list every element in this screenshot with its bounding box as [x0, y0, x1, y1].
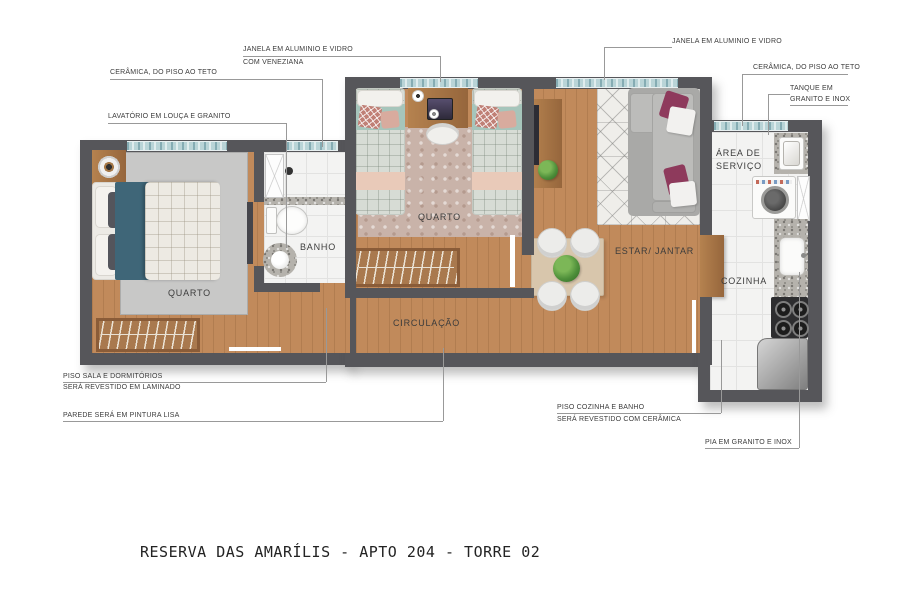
annotation-sink: PIA EM GRANITO E INOX	[705, 439, 792, 447]
annotation-paint: PAREDE SERÁ EM PINTURA LISA	[63, 412, 180, 420]
single-bed-right	[472, 88, 522, 215]
table-lamp	[97, 155, 121, 179]
leader-line	[108, 123, 286, 124]
leader-line	[63, 382, 326, 383]
dining-chair	[570, 281, 600, 311]
duvet	[145, 182, 220, 280]
dining-chair	[537, 281, 567, 311]
annotation-window-right: JANELA EM ALUMINIO E VIDRO	[672, 38, 782, 46]
room-label-living: ESTAR/ JANTAR	[615, 246, 694, 256]
sofa-throw	[666, 106, 696, 136]
dining-chair	[537, 228, 567, 258]
faucet	[801, 253, 806, 258]
living-window	[556, 78, 678, 88]
service-door-panel	[797, 176, 810, 221]
leader-line	[742, 74, 743, 126]
service-window	[714, 121, 788, 131]
toilet-bowl	[276, 206, 308, 235]
leader-line	[322, 79, 323, 147]
annotation-laminate-line1: PISO SALA E DORMITÓRIOS	[63, 373, 163, 381]
washer-door	[761, 186, 789, 214]
annotation-ceramic-floor-line1: PISO COZINHA E BANHO	[557, 404, 644, 412]
fridge	[757, 338, 808, 390]
sink-basin	[271, 251, 289, 269]
shower-ledge	[264, 197, 345, 205]
leader-line	[557, 413, 721, 414]
annotation-ceramic-floor-line2: SERÁ REVESTIDO COM CERÂMICA	[557, 416, 681, 424]
leader-line	[243, 56, 440, 57]
bedroom2-window	[400, 78, 478, 88]
washing-machine	[752, 176, 796, 219]
bathroom-wall	[254, 140, 264, 202]
leader-line	[790, 105, 848, 106]
bedroom2-wall	[522, 77, 534, 255]
floorplan-page: QUARTO BANHO QUARTO CIRCULAÇÃO ESTAR/ JA…	[0, 0, 900, 600]
stove-burner	[775, 301, 792, 318]
stove	[771, 297, 808, 338]
plain-cushion	[380, 110, 400, 129]
room-label-bedroom1: QUARTO	[168, 288, 211, 298]
room-label-bedroom2: QUARTO	[418, 212, 461, 222]
tank-basin	[783, 141, 800, 166]
leader-line	[768, 94, 790, 95]
laundry-tank	[779, 137, 804, 170]
leader-line	[326, 308, 327, 382]
sofa	[628, 88, 700, 216]
single-bed-left	[355, 88, 405, 215]
room-label-kitchen: COZINHA	[721, 276, 767, 286]
annotation-window-left-line2: COM VENEZIANA	[243, 59, 304, 67]
wardrobe	[96, 318, 200, 352]
annotation-laminate-line2: SERÁ REVESTIDO EM LAMINADO	[63, 384, 181, 392]
bedroom2-wall	[345, 288, 534, 298]
door-marker	[692, 300, 696, 353]
sofa-throw	[669, 181, 697, 208]
wardrobe-rail	[102, 334, 194, 335]
pass-through-counter	[700, 235, 724, 297]
centerpiece-plant	[553, 255, 580, 282]
door-marker	[229, 347, 281, 351]
wardrobe	[353, 248, 460, 287]
leader-line	[604, 47, 605, 80]
stove-burner	[775, 320, 792, 337]
plant	[538, 160, 558, 180]
leader-line	[742, 74, 848, 75]
annotation-ceramic-right: CERÂMICA, DO PISO AO TETO	[753, 64, 860, 72]
leader-line	[604, 47, 672, 48]
leader-line	[721, 340, 722, 413]
bedroom1-window	[127, 141, 227, 151]
room-label-bathroom: BANHO	[300, 242, 336, 252]
annotation-window-left-line1: JANELA EM ALUMINIO E VIDRO	[243, 46, 353, 54]
leader-line	[768, 94, 769, 135]
leader-line	[110, 79, 322, 80]
diamond-cushion	[358, 105, 383, 130]
annotation-lavatory: LAVATÓRIO EM LOUÇA E GRANITO	[108, 113, 231, 121]
leader-line	[799, 272, 800, 448]
leader-line	[286, 123, 287, 248]
living-kitchen-wall	[700, 85, 712, 235]
annotation-ceramic-left: CERÂMICA, DO PISO AO TETO	[110, 69, 217, 77]
bedroom2-wall	[345, 77, 356, 290]
leader-line	[443, 348, 444, 421]
annotation-tank-line1: TANQUE EM	[790, 85, 833, 93]
wardrobe-rail	[359, 267, 454, 268]
diamond-cushion	[475, 105, 500, 130]
stove-burner	[792, 320, 809, 337]
leader-line	[705, 448, 799, 449]
wardrobe-hangers	[99, 321, 197, 349]
bathroom-sink	[263, 243, 297, 277]
shower-glass	[265, 154, 284, 198]
desk-lamp	[412, 90, 424, 102]
room-label-hallway: CIRCULAÇÃO	[393, 318, 460, 328]
leader-line	[440, 56, 441, 82]
door-leaf	[247, 202, 253, 264]
plain-cushion	[497, 110, 517, 129]
double-bed	[92, 182, 220, 280]
leader-line	[63, 421, 443, 422]
page-title: RESERVA DAS AMARÍLIS - APTO 204 - TORRE …	[140, 543, 540, 561]
room-label-service-line2: SERVIÇO	[716, 161, 762, 171]
desk-chair	[426, 123, 459, 145]
room-label-service-line1: ÁREA DE	[716, 148, 761, 158]
blanket-band	[472, 172, 522, 190]
living-kitchen-wall	[700, 297, 712, 365]
annotation-tank-line2: GRANITO E INOX	[790, 96, 850, 104]
desk-mug	[429, 109, 439, 119]
dining-chair	[570, 228, 600, 258]
bathroom-window	[287, 141, 338, 151]
stove-burner	[792, 301, 809, 318]
washer-controls	[756, 180, 792, 184]
blanket-band	[355, 172, 405, 190]
bathroom-wall	[254, 283, 320, 292]
door-marker	[510, 235, 515, 287]
